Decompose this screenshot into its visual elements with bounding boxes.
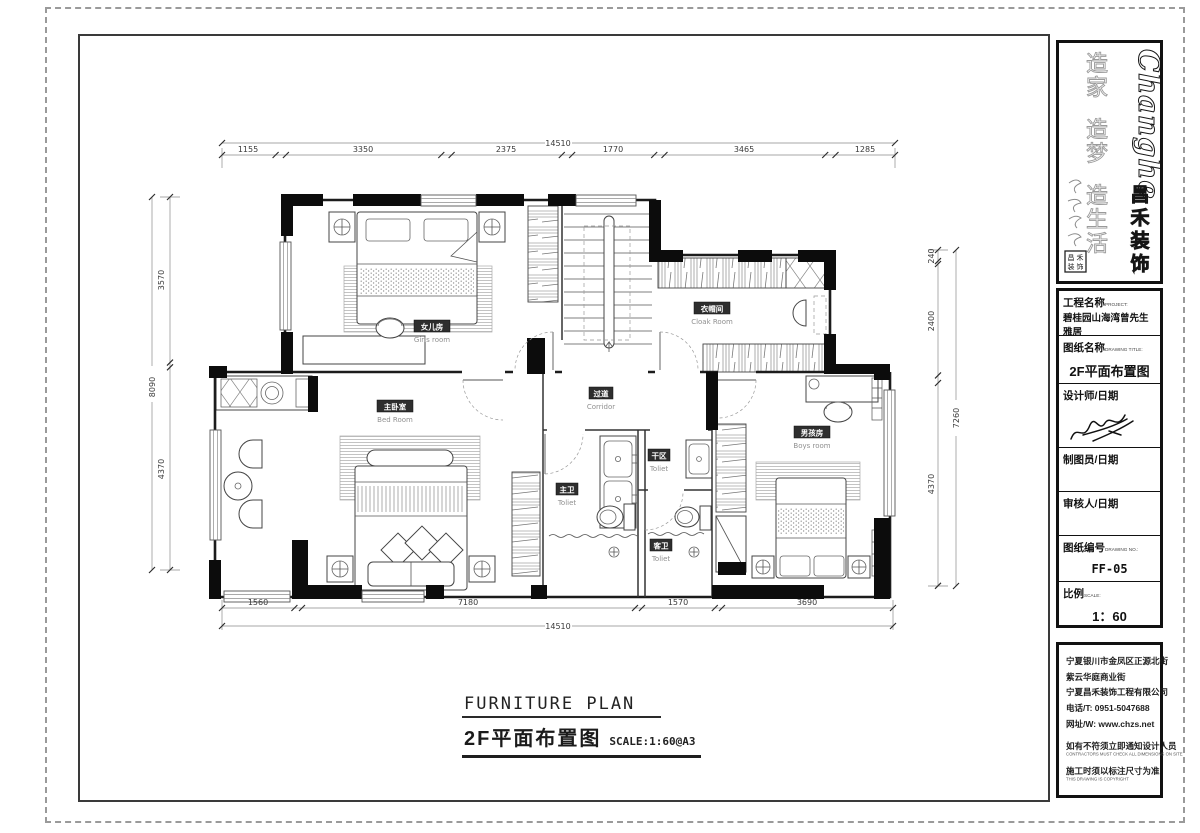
brand-logo-en: Changhe bbox=[1132, 49, 1160, 200]
svg-text:梦: 梦 bbox=[1086, 142, 1108, 167]
drawing-title-label-row: 图纸名称DRAWING TITLE: bbox=[1059, 335, 1160, 355]
svg-text:饰: 饰 bbox=[1077, 262, 1084, 271]
dry-area-label-en: Toliet bbox=[649, 465, 669, 473]
brand-logo-cn-1: 昌 bbox=[1130, 184, 1149, 206]
top-total-dim: 14510 bbox=[545, 139, 570, 148]
bottom-total-dim: 14510 bbox=[545, 622, 570, 631]
brand-logo: Changhe 昌 禾 装 饰 造 家 造 梦 造 生 活 bbox=[1059, 43, 1160, 281]
dimensions-top: 1155 3350 2375 1770 3465 1285 14510 bbox=[219, 139, 898, 168]
master-room-label: 主卧室 bbox=[384, 402, 407, 412]
drawing-title-value: 2F平面布置图 bbox=[1059, 355, 1160, 383]
plan-title-en: FURNITURE PLAN bbox=[462, 694, 661, 718]
company-name: 宁夏昌禾装饰工程有限公司 bbox=[1066, 685, 1153, 701]
drawing-no-label-row: 图纸编号DRAWING NO.: bbox=[1059, 535, 1160, 555]
company-address-1: 宁夏银川市金凤区正源北街 bbox=[1066, 654, 1153, 670]
svg-text:4370: 4370 bbox=[157, 459, 166, 479]
svg-text:造: 造 bbox=[1086, 184, 1108, 209]
corridor-label: 过道 bbox=[594, 389, 609, 399]
master-bath-fixtures bbox=[549, 436, 637, 557]
girls-room-label: 女儿房 bbox=[421, 322, 444, 332]
scale-value: 1：60 bbox=[1059, 601, 1160, 628]
project-label-row: 工程名称PROJECT: bbox=[1059, 291, 1160, 311]
svg-text:240: 240 bbox=[927, 248, 936, 263]
drawing-sheet: 女儿房 Girls room 衣帽间 Cloak Room 过道 Corrido… bbox=[0, 0, 1200, 833]
brand-seal: 昌 禾 装 饰 bbox=[1065, 251, 1086, 272]
boys-room-label-en: Boys room bbox=[793, 442, 830, 450]
drawing-no-value: FF-05 bbox=[1059, 555, 1160, 581]
cloak-room-label: 衣帽间 bbox=[701, 304, 724, 314]
brand-logo-cn-2: 禾 bbox=[1130, 207, 1149, 229]
dry-area-label: 干区 bbox=[652, 452, 667, 461]
signature bbox=[1063, 405, 1160, 447]
note-1-en: CONTRACTORS MUST CHECK ALL DIMENSIONS ON… bbox=[1066, 752, 1140, 757]
svg-text:生: 生 bbox=[1086, 208, 1108, 233]
svg-text:1155: 1155 bbox=[238, 145, 258, 154]
company-box: 宁夏银川市金凤区正源北街 紫云华庭商业街 宁夏昌禾装饰工程有限公司 电话/T: … bbox=[1056, 642, 1163, 798]
plan-scale-note: SCALE:1:60@A3 bbox=[609, 735, 695, 748]
approver-value-empty bbox=[1059, 511, 1160, 535]
svg-text:1770: 1770 bbox=[603, 145, 623, 154]
approver-label-row: 审核人/日期APPROVED/DATE: bbox=[1059, 491, 1160, 511]
guest-bath-label-en: Toliet bbox=[651, 555, 671, 563]
svg-text:昌: 昌 bbox=[1068, 254, 1075, 262]
svg-text:活: 活 bbox=[1086, 232, 1108, 257]
svg-text:2375: 2375 bbox=[496, 145, 516, 154]
stairs bbox=[564, 214, 652, 352]
svg-text:3465: 3465 bbox=[734, 145, 754, 154]
company-phone: 电话/T: 0951-5047688 bbox=[1066, 701, 1153, 717]
svg-text:家: 家 bbox=[1086, 76, 1108, 101]
cloak-room-label-en: Cloak Room bbox=[691, 318, 733, 326]
scale-label-row: 比例SCALE: bbox=[1059, 581, 1160, 601]
svg-text:1570: 1570 bbox=[668, 598, 688, 607]
plan-title-cn: 2F平面布置图 bbox=[464, 728, 601, 750]
svg-text:1285: 1285 bbox=[855, 145, 875, 154]
dimensions-right: 240 2400 4370 7260 bbox=[927, 247, 961, 589]
svg-text:造: 造 bbox=[1086, 118, 1108, 143]
guest-bath-label: 客卫 bbox=[653, 541, 669, 551]
svg-text:4370: 4370 bbox=[927, 474, 936, 494]
cloak-room-furniture bbox=[658, 258, 826, 372]
designer-label-row: 设计师/日期DESIGN/DATE: bbox=[1059, 383, 1160, 403]
svg-text:2400: 2400 bbox=[927, 311, 936, 331]
company-address-2: 紫云华庭商业街 bbox=[1066, 670, 1153, 686]
boys-room-label: 男孩房 bbox=[801, 428, 824, 438]
svg-text:3570: 3570 bbox=[157, 270, 166, 290]
svg-text:禾: 禾 bbox=[1077, 254, 1084, 262]
svg-text:1560: 1560 bbox=[248, 598, 268, 607]
note-2-en: THIS DRAWING IS COPYRIGHT bbox=[1066, 777, 1140, 782]
right-total-dim: 7260 bbox=[952, 408, 961, 428]
drafter-value-empty bbox=[1059, 467, 1160, 491]
master-room-label-en: Bed Room bbox=[377, 416, 413, 424]
logo-box: Changhe 昌 禾 装 饰 造 家 造 梦 造 生 活 bbox=[1056, 40, 1163, 284]
company-website: 网址/W: www.chzs.net bbox=[1066, 717, 1153, 733]
brand-logo-cn-4: 饰 bbox=[1130, 252, 1149, 275]
drafter-label-row: 制图员/日期DRAWN/DATE: bbox=[1059, 447, 1160, 467]
calligraphy-marks bbox=[1068, 180, 1081, 246]
left-total-dim: 8090 bbox=[148, 377, 157, 397]
svg-text:装: 装 bbox=[1068, 262, 1075, 271]
note-2-cn: 施工时须以标注尺寸为准 bbox=[1066, 765, 1153, 777]
project-value: 碧桂园山海湾曾先生雅居 bbox=[1059, 311, 1160, 335]
dimensions-bottom: 1560 7180 1570 3690 14510 bbox=[219, 598, 896, 631]
plan-title: FURNITURE PLAN 2F平面布置图SCALE:1:60@A3 bbox=[462, 694, 701, 758]
master-bath-label-en: Toliet bbox=[557, 499, 577, 507]
note-1-cn: 如有不符须立即通知设计人员 bbox=[1066, 740, 1153, 752]
svg-text:造: 造 bbox=[1086, 52, 1108, 77]
svg-text:3350: 3350 bbox=[353, 145, 373, 154]
brand-logo-cn-3: 装 bbox=[1129, 229, 1149, 252]
dimensions-left: 3570 4370 8090 bbox=[148, 194, 180, 573]
svg-text:3690: 3690 bbox=[797, 598, 817, 607]
master-bath-label: 主卫 bbox=[560, 485, 575, 495]
svg-text:7180: 7180 bbox=[458, 598, 478, 607]
designer-signature bbox=[1059, 403, 1160, 447]
girls-room-label-en: Girls room bbox=[414, 336, 450, 344]
title-block: 工程名称PROJECT: 碧桂园山海湾曾先生雅居 图纸名称DRAWING TIT… bbox=[1056, 288, 1163, 628]
corridor-label-en: Corridor bbox=[587, 403, 615, 411]
